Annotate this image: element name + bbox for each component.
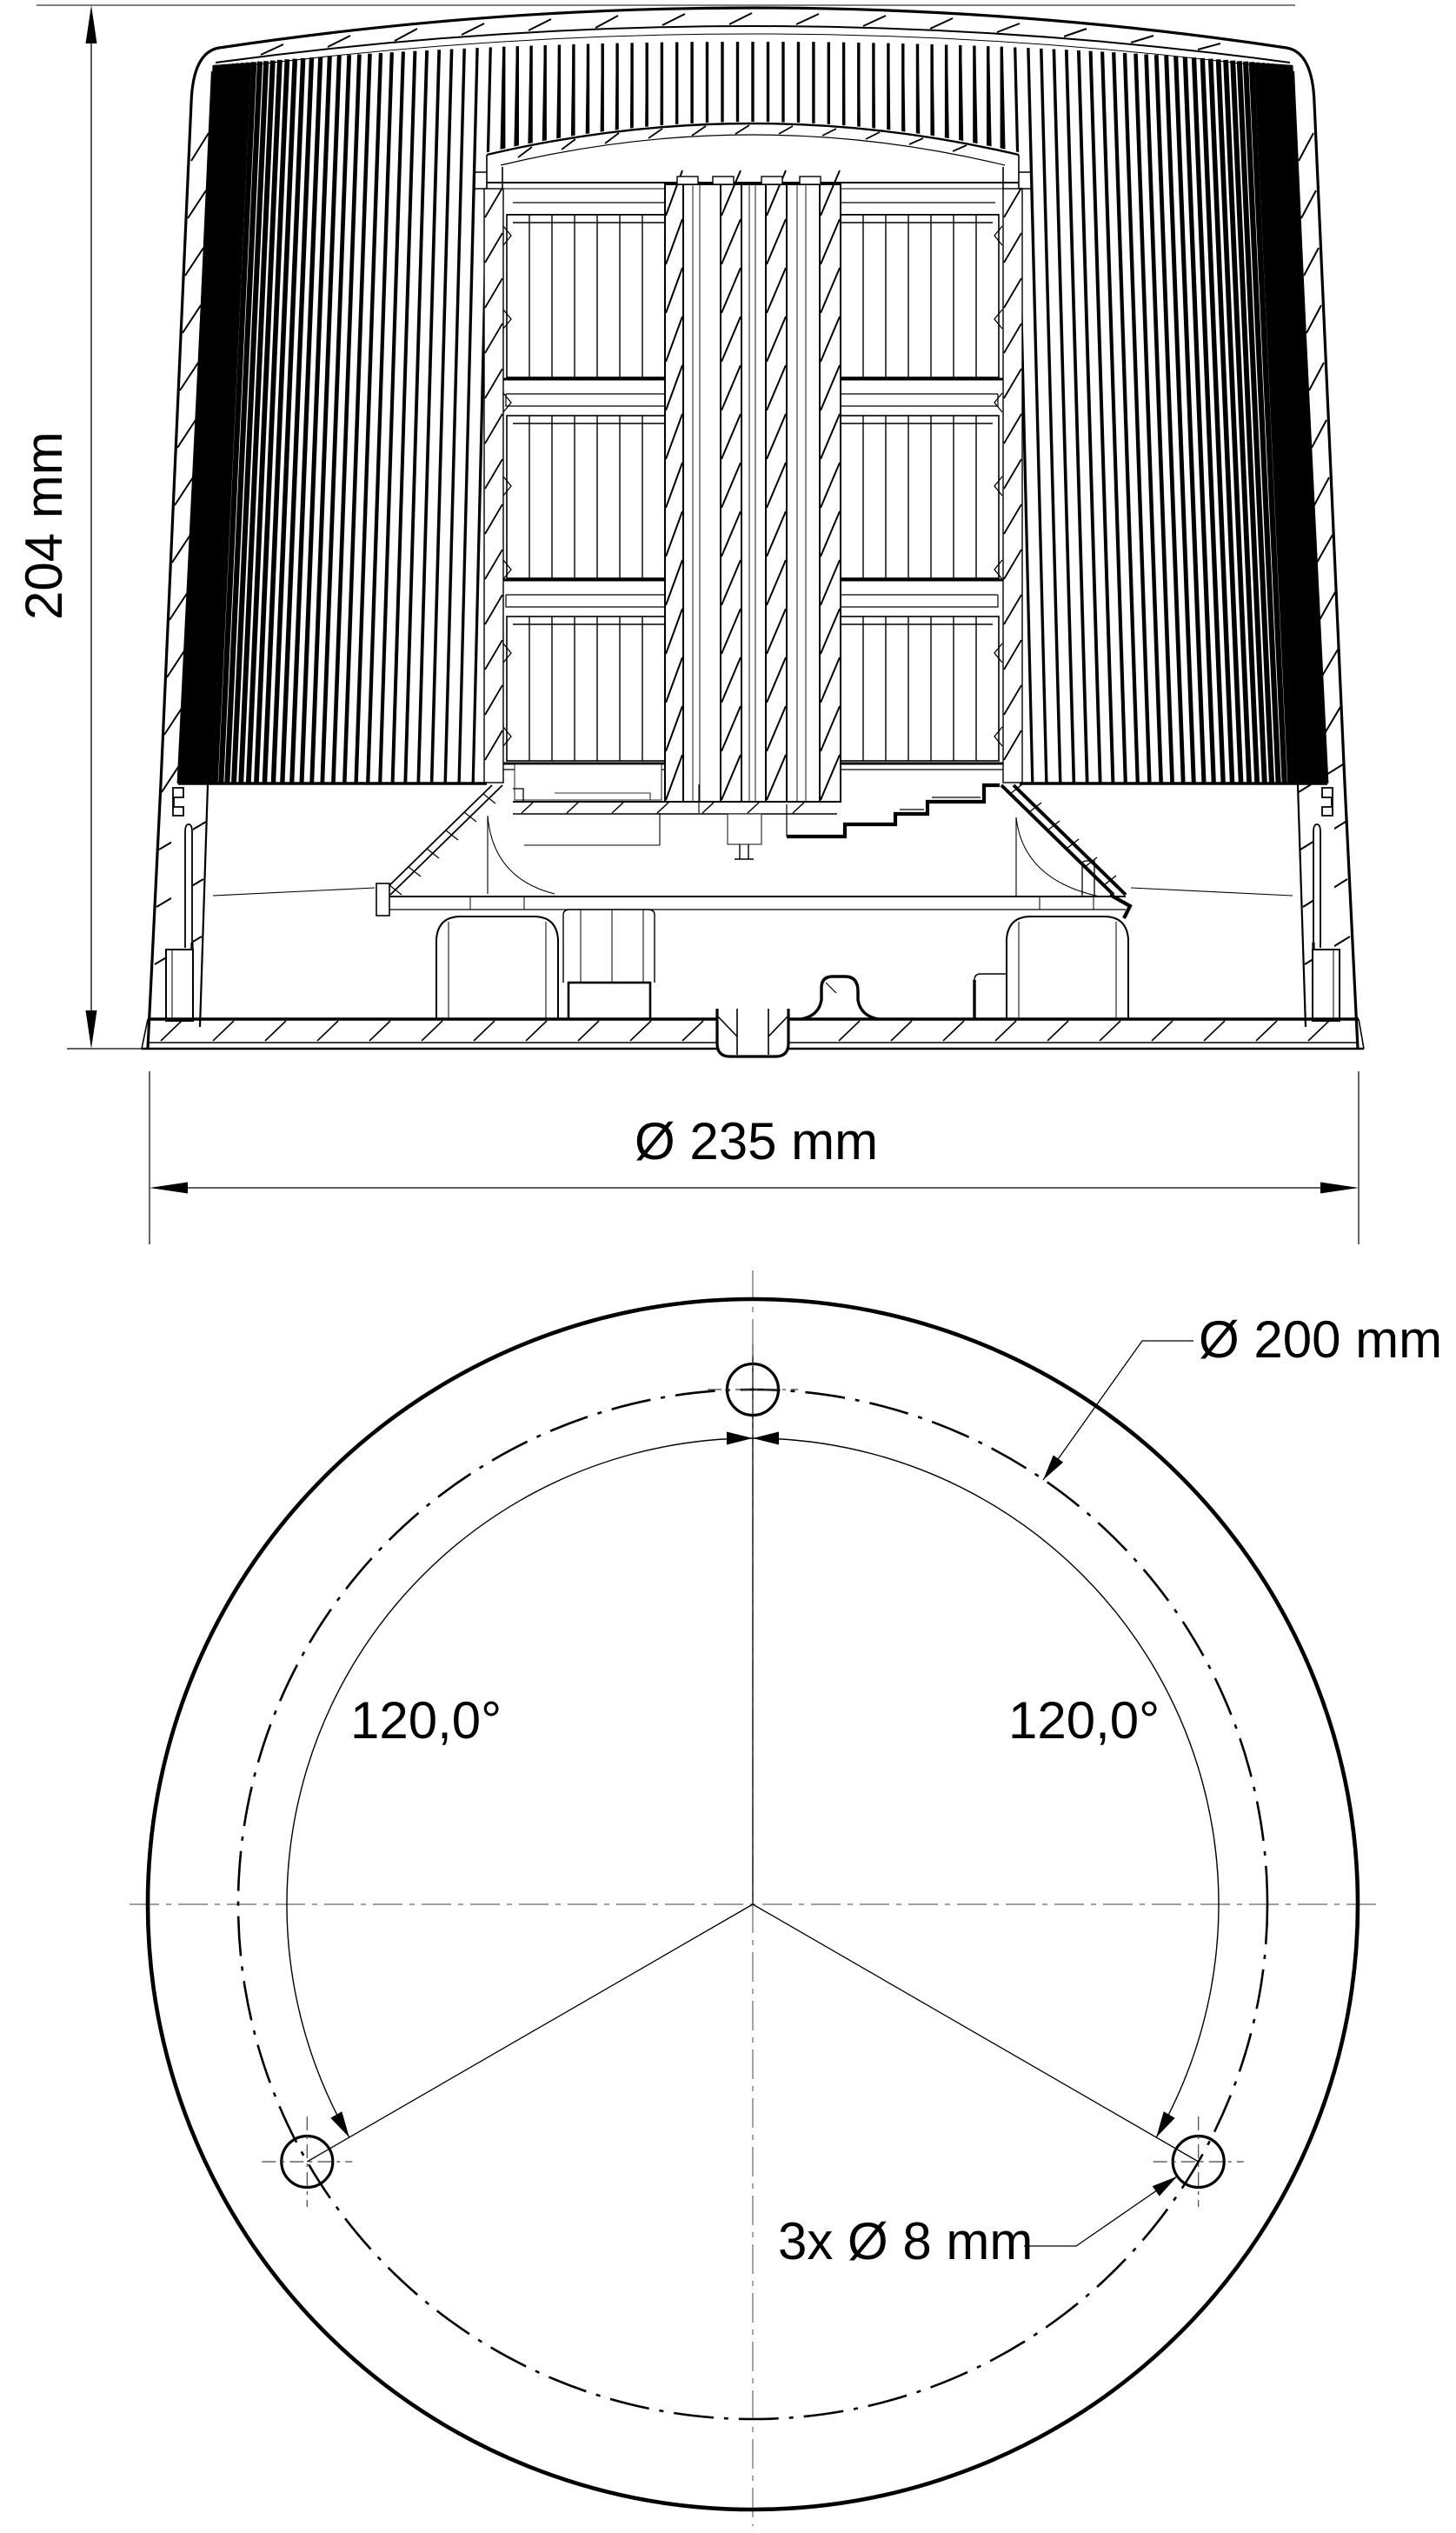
svg-text:204 mm: 204 mm: [15, 431, 73, 620]
svg-text:3x Ø 8 mm: 3x Ø 8 mm: [778, 2212, 1033, 2270]
svg-text:Ø 235 mm: Ø 235 mm: [635, 1112, 878, 1170]
svg-text:Ø 200 mm: Ø 200 mm: [1199, 1310, 1442, 1369]
svg-text:120,0°: 120,0°: [1008, 1691, 1160, 1750]
svg-text:120,0°: 120,0°: [350, 1691, 502, 1750]
